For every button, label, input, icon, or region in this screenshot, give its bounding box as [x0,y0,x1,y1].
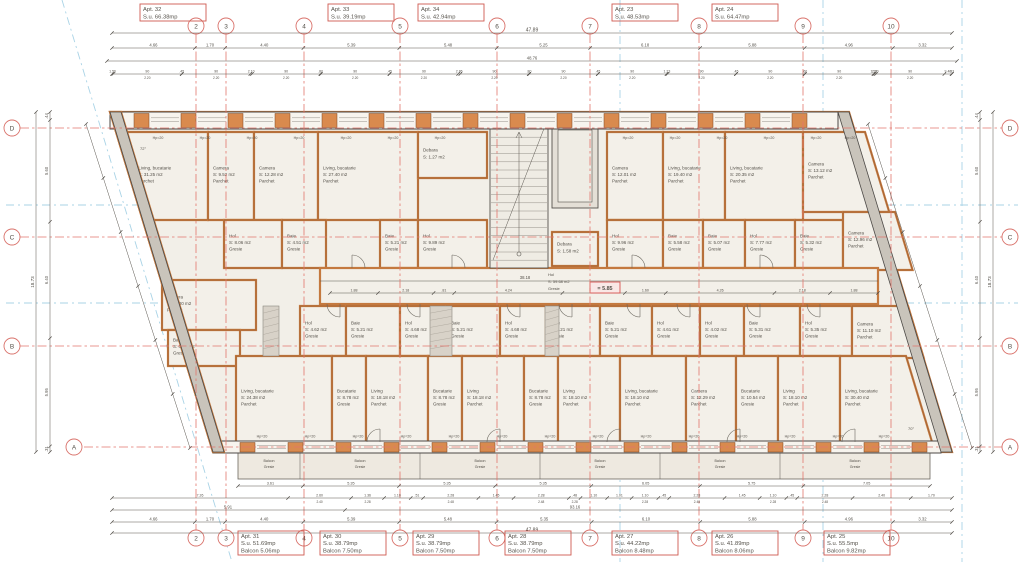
svg-text:Balcon: Balcon [355,459,366,463]
svg-text:Gresie: Gresie [505,334,519,339]
svg-text:Apt. 29: Apt. 29 [416,534,434,540]
svg-text:A: A [72,444,77,451]
svg-text:Hp=20: Hp=20 [845,136,856,140]
svg-text:Apt. 23: Apt. 23 [615,7,633,13]
svg-text:S.u. 64.47mp: S.u. 64.47mp [715,14,749,20]
svg-text:38.18: 38.18 [520,275,531,280]
svg-text:5.35: 5.35 [443,481,450,485]
svg-text:S: 27.40 m2: S: 27.40 m2 [323,172,348,177]
svg-text:Apt. 34: Apt. 34 [421,7,440,13]
room: BucatarieS: 8.78 m2Gresie [428,356,462,442]
svg-text:5.48: 5.48 [444,42,453,47]
svg-text:Gresie: Gresie [264,465,275,469]
svg-text:10: 10 [887,535,895,542]
svg-text:6: 6 [495,23,499,30]
svg-text:Apt. 32: Apt. 32 [143,7,161,13]
svg-text:5.60: 5.60 [44,166,49,175]
svg-text:Living, bucatarie: Living, bucatarie [625,388,658,393]
svg-text:Living, bucatarie: Living, bucatarie [241,388,274,393]
room: Living, bucatarieS: 24.38 m2Parchet [236,356,332,442]
grid-bubble: 9 [795,18,811,34]
svg-text:S: 30.40 m2: S: 30.40 m2 [845,395,870,400]
svg-text:2.48: 2.48 [538,500,544,504]
svg-text:Parchet: Parchet [848,244,864,249]
svg-text:1.10: 1.10 [770,493,777,497]
svg-text:Hol: Hol [805,320,812,325]
svg-text:Gresie: Gresie [708,247,722,252]
svg-text:Hol: Hol [612,233,619,238]
svg-text:S: 12.28 m2: S: 12.28 m2 [259,172,284,177]
svg-text:Hp=20: Hp=20 [811,136,822,140]
svg-text:Hp=20: Hp=20 [341,136,352,140]
apartment-label: Apt. 34S.u. 42.94mp [418,4,484,21]
svg-text:2.40: 2.40 [878,493,885,497]
svg-text:3.32: 3.32 [918,42,927,47]
svg-text:Apt. 27: Apt. 27 [615,534,633,540]
svg-text:.44: .44 [974,112,979,118]
svg-text:Parchet: Parchet [323,179,339,184]
room: HolS: 4.61 m2Gresie [652,306,700,356]
svg-text:Gresie: Gresie [351,334,365,339]
svg-text:2.20: 2.20 [767,76,773,80]
svg-text:3: 3 [224,535,228,542]
svg-text:Hp=20: Hp=20 [833,435,844,439]
svg-text:5.91: 5.91 [224,504,233,509]
svg-text:5.88: 5.88 [748,516,757,521]
svg-text:Balcon 7.50mp: Balcon 7.50mp [323,548,362,554]
room: HolS: 7.77 m2Gresie [745,220,795,268]
svg-text:1.45: 1.45 [739,493,746,497]
svg-text:Balcon 5.06mp: Balcon 5.06mp [241,548,280,554]
svg-text:Parchet: Parchet [241,402,257,407]
svg-text:1.88: 1.88 [851,288,858,292]
grid-bubble: 6 [489,530,505,546]
svg-text:2.28: 2.28 [822,493,829,497]
svg-text:Hol: Hol [423,233,430,238]
svg-text:4.40: 4.40 [260,516,269,521]
svg-text:1.70: 1.70 [206,516,215,521]
grid-bubble: D [4,120,20,136]
svg-text:2.28: 2.28 [447,493,454,497]
svg-text:S: 4.62 m2: S: 4.62 m2 [305,327,327,332]
room: LivingS: 18.18 m2Parchet [462,356,524,442]
svg-text:Hp=20: Hp=20 [257,435,268,439]
svg-text:.44: .44 [44,112,49,118]
svg-text:Gresie: Gresie [605,334,619,339]
room: HolS: 4.68 m2Gresie [500,306,546,356]
svg-text:Hol: Hol [548,272,554,277]
svg-text:S: 18.18 m2: S: 18.18 m2 [371,395,396,400]
svg-text:S: 4.51 m2: S: 4.51 m2 [287,240,309,245]
svg-text:2.28: 2.28 [770,500,776,504]
floor-plan-page: BalconGresieBalconGresieBalconGresieBalc… [0,0,1024,562]
svg-text:2.20: 2.20 [352,76,358,80]
svg-text:Hp=20: Hp=20 [435,136,446,140]
grid-bubble: 4 [296,18,312,34]
svg-text:Gresie: Gresie [548,286,561,291]
svg-text:7: 7 [588,23,592,30]
svg-text:Gresie: Gresie [385,247,399,252]
svg-text:4.96: 4.96 [845,42,854,47]
svg-text:.81: .81 [441,288,446,292]
svg-text:Gresie: Gresie [715,465,726,469]
svg-text:5.35: 5.35 [347,481,354,485]
svg-text:Gresie: Gresie [657,334,671,339]
svg-text:Hp=20: Hp=20 [717,136,728,140]
svg-text:4.24: 4.24 [505,288,512,292]
svg-text:2.20: 2.20 [421,76,427,80]
room: BucatarieS: 8.78 m2Gresie [332,356,366,442]
svg-text:3.32: 3.32 [918,516,927,521]
room: HolS: 8.06 m2Gresie [224,220,282,268]
room: LivingS: 18.10 m2Parchet [558,356,620,442]
svg-text:S: 7.77 m2: S: 7.77 m2 [750,240,772,245]
svg-text:S: 20.35 m2: S: 20.35 m2 [730,172,755,177]
svg-text:Hp=20: Hp=20 [593,435,604,439]
svg-text:S: 5.21 m2: S: 5.21 m2 [351,327,373,332]
svg-text:S: 18.10 m2: S: 18.10 m2 [563,395,588,400]
svg-text:90: 90 [908,69,912,73]
svg-text:90: 90 [630,69,634,73]
apartment-label: Apt. 27S.u. 44.22mpBalcon 8.48mp [612,531,678,555]
svg-text:Apt. 25: Apt. 25 [827,534,845,540]
room: BucatarieS: 10.54 m2Gresie [736,356,778,442]
svg-text:7.05: 7.05 [863,481,870,485]
svg-text:= 5.85: = 5.85 [597,286,612,292]
svg-text:Gresie: Gresie [451,334,465,339]
svg-text:S.u. 44.22mp: S.u. 44.22mp [615,541,649,547]
svg-text:5.95: 5.95 [44,388,49,397]
svg-text:Balcon 8.06mp: Balcon 8.06mp [715,548,754,554]
svg-text:10: 10 [887,23,895,30]
room: BucatarieS: 8.78 m2Gresie [524,356,558,442]
svg-text:Apt. 24: Apt. 24 [715,7,734,13]
apartment-label: Apt. 30S.u. 38.79mpBalcon 7.50mp [320,531,386,555]
grid-bubble: 2 [188,530,204,546]
svg-text:2.28: 2.28 [538,493,545,497]
svg-text:.31: .31 [44,446,49,452]
svg-text:Camera: Camera [857,321,874,326]
svg-text:Gresie: Gresie [229,247,243,252]
svg-text:S: 5.21 m2: S: 5.21 m2 [451,327,473,332]
svg-text:2.20: 2.20 [283,76,289,80]
svg-text:Balcon: Balcon [475,459,486,463]
room: BaieS: 5.21 m2Gresie [346,306,400,356]
svg-text:S: 8.78 m2: S: 8.78 m2 [529,395,551,400]
grid-bubble: 3 [218,530,234,546]
svg-text:Hp=20: Hp=20 [737,435,748,439]
svg-text:47.89: 47.89 [526,527,539,533]
svg-text:Living: Living [467,388,479,393]
svg-text:D: D [10,125,15,132]
room: BaieS: 5.21 m2Gresie [600,306,652,356]
svg-text:Gresie: Gresie [749,334,763,339]
svg-text:2.18: 2.18 [402,288,409,292]
room: BaieS: 5.07 m2Gresie [703,220,745,268]
svg-text:Balcon: Balcon [264,459,275,463]
apartment-label: Apt. 28S.u. 38.79mpBalcon 7.50mp [505,531,571,555]
svg-text:90: 90 [768,69,772,73]
svg-text:Hp=20: Hp=20 [401,435,412,439]
svg-text:.31: .31 [974,446,979,452]
svg-text:S.u. 55.5mp: S.u. 55.5mp [827,541,858,547]
svg-text:6.40: 6.40 [44,275,49,284]
svg-text:.45: .45 [661,493,666,497]
svg-text:Hp=20: Hp=20 [200,136,211,140]
room: HolS: 9.96 m2Gresie [607,220,663,268]
svg-text:Living: Living [563,388,575,393]
svg-text:Camera: Camera [213,165,230,170]
svg-text:Baie: Baie [385,233,395,238]
svg-text:Balcon 7.50mp: Balcon 7.50mp [416,548,455,554]
svg-text:S: 18.10 m2: S: 18.10 m2 [783,395,808,400]
svg-text:5.39: 5.39 [347,42,356,47]
svg-text:Hp=20: Hp=20 [785,435,796,439]
svg-text:Gresie: Gresie [475,465,486,469]
svg-text:2.20: 2.20 [213,76,219,80]
svg-text:90: 90 [353,69,357,73]
svg-text:D: D [1008,125,1013,132]
svg-text:5.48: 5.48 [444,516,453,521]
svg-text:5: 5 [398,23,402,30]
room: CameraS: 12.29 m2Parchet [686,356,736,442]
svg-text:2: 2 [194,535,198,542]
svg-text:Parchet: Parchet [612,179,628,184]
svg-text:90: 90 [284,69,288,73]
room: Living, bucatarieS: 18.10 m2Parchet [620,356,686,442]
svg-text:S: 4.68 m2: S: 4.68 m2 [405,327,427,332]
apartment-label: Apt. 31S.u. 51.69mpBalcon 5.06mp [238,531,304,555]
svg-text:Baie: Baie [605,320,615,325]
svg-text:Bucatarie: Bucatarie [433,388,453,393]
svg-text:S: 5.58 m2: S: 5.58 m2 [668,240,690,245]
room: Living, bucatarieS: 20.35 m2Parchet [725,132,803,220]
room: BaieS: 5.58 m2Gresie [663,220,703,268]
svg-text:2.20: 2.20 [698,76,704,80]
svg-text:Hp=20: Hp=20 [449,435,460,439]
svg-text:Parchet: Parchet [857,335,873,340]
apartment-label: Apt. 26S.u. 41.89mpBalcon 8.06mp [712,531,778,555]
svg-text:.45: .45 [789,493,794,497]
grid-bubble: 3 [218,18,234,34]
svg-text:2.28: 2.28 [364,500,370,504]
svg-text:4.96: 4.96 [845,516,854,521]
svg-text:Gresie: Gresie [337,402,351,407]
svg-text:Parchet: Parchet [213,179,229,184]
room: Living, bucatarieS: 19.40 m2Parchet [663,132,725,220]
apartment-label: Apt. 33S.u. 39.19mp [328,4,394,21]
svg-text:Hol: Hol [705,320,712,325]
svg-text:90: 90 [493,69,497,73]
svg-text:Balcon 7.50mp: Balcon 7.50mp [508,548,547,554]
svg-text:Apt. 31: Apt. 31 [241,534,259,540]
svg-text:Gresie: Gresie [433,402,447,407]
svg-text:S: 5.21 m2: S: 5.21 m2 [605,327,627,332]
room: CameraS: 9.52 m2Parchet [208,132,254,220]
svg-text:S: 1.27 m2: S: 1.27 m2 [423,154,445,159]
svg-text:Living, bucatarie: Living, bucatarie [138,165,171,170]
svg-text:S: 5.35 m2: S: 5.35 m2 [805,327,827,332]
svg-text:Gresie: Gresie [741,402,755,407]
svg-text:Apt. 28: Apt. 28 [508,534,526,540]
apartment-label: Apt. 29S.u. 38.79mpBalcon 7.50mp [413,531,479,555]
svg-text:Gresie: Gresie [750,247,764,252]
svg-text:Living, bucatarie: Living, bucatarie [845,388,878,393]
svg-text:47.89: 47.89 [526,27,539,33]
svg-text:Balcon 9.82mp: Balcon 9.82mp [827,548,866,554]
svg-text:C: C [10,234,15,241]
svg-text:4.26: 4.26 [717,288,724,292]
svg-text:.48: .48 [572,493,577,497]
grid-bubble: 10 [883,18,899,34]
svg-text:Bucatarie: Bucatarie [741,388,761,393]
grid-bubble: 7 [582,18,598,34]
room: BaieS: 5.21 m2Gresie [446,306,500,356]
svg-text:S.u. 51.69mp: S.u. 51.69mp [241,541,275,547]
svg-text:2: 2 [194,23,198,30]
svg-text:2.20: 2.20 [629,76,635,80]
svg-text:7: 7 [588,535,592,542]
svg-text:18.73: 18.73 [30,276,35,288]
svg-text:Camera: Camera [808,161,825,166]
svg-text:Gresie: Gresie [595,465,606,469]
svg-text:S: 9.52 m2: S: 9.52 m2 [213,172,235,177]
svg-text:Parchet: Parchet [625,402,641,407]
svg-text:S: 18.18 m2: S: 18.18 m2 [467,395,492,400]
svg-text:90: 90 [145,69,149,73]
svg-text:4: 4 [302,23,306,30]
svg-text:2.20: 2.20 [907,76,913,80]
svg-text:S.u. 41.89mp: S.u. 41.89mp [715,541,749,547]
svg-text:2.18: 2.18 [799,288,806,292]
svg-text:S.u. 38.79mp: S.u. 38.79mp [323,541,357,547]
svg-text:3.61: 3.61 [267,481,274,485]
svg-text:Hp=20: Hp=20 [153,136,164,140]
svg-text:1.23: 1.23 [664,69,671,73]
svg-text:Baie: Baie [451,320,461,325]
svg-text:Gresie: Gresie [423,247,437,252]
svg-text:S.u. 42.94mp: S.u. 42.94mp [421,14,455,20]
svg-text:5.88: 5.88 [748,42,757,47]
svg-text:S: 5.31 m2: S: 5.31 m2 [749,327,771,332]
svg-text:S.u. 48.53mp: S.u. 48.53mp [615,14,649,20]
svg-text:Hp=20: Hp=20 [623,136,634,140]
svg-text:90: 90 [214,69,218,73]
grid-bubble: 8 [691,18,707,34]
svg-text:8: 8 [697,535,701,542]
grid-bubble: 9 [795,530,811,546]
svg-text:Balcon: Balcon [715,459,726,463]
svg-text:S: 19.40 m2: S: 19.40 m2 [668,172,693,177]
svg-text:Camera: Camera [848,230,865,235]
svg-text:1.70: 1.70 [928,493,935,497]
floor-plan-svg: BalconGresieBalconGresieBalconGresieBalc… [0,0,1024,562]
corridor: 38.181.882.18.814.242.451.604.262.181.88… [320,268,880,304]
svg-text:S.u. 38.79mp: S.u. 38.79mp [508,541,542,547]
elevator [552,124,598,208]
svg-text:Hol: Hol [657,320,664,325]
svg-text:2.20: 2.20 [144,76,150,80]
svg-text:Parchet: Parchet [467,402,483,407]
svg-text:S: 8.06 m2: S: 8.06 m2 [229,240,251,245]
svg-text:2.20: 2.20 [560,76,566,80]
svg-text:6.40: 6.40 [974,275,979,284]
svg-text:1.10: 1.10 [642,493,649,497]
svg-text:2.28: 2.28 [642,500,648,504]
svg-text:S: 9.96 m2: S: 9.96 m2 [612,240,634,245]
svg-text:Living, bucatarie: Living, bucatarie [730,165,763,170]
svg-text:93.16: 93.16 [570,504,581,509]
svg-text:Hol: Hol [305,320,312,325]
svg-text:Hol: Hol [505,320,512,325]
svg-text:2.28: 2.28 [572,500,578,504]
svg-text:B: B [1008,343,1012,350]
svg-text:Baie: Baie [351,320,361,325]
svg-text:2.48: 2.48 [822,500,828,504]
svg-text:6.05: 6.05 [642,481,649,485]
svg-text:48.76: 48.76 [527,55,538,60]
svg-text:90: 90 [700,69,704,73]
svg-text:1.56: 1.56 [109,69,116,73]
svg-text:5.35: 5.35 [540,481,547,485]
svg-text:Baie: Baie [287,233,297,238]
svg-text:S.u. 66.38mp: S.u. 66.38mp [143,14,177,20]
svg-text:72°: 72° [140,146,146,151]
svg-text:2.28: 2.28 [693,493,700,497]
room: LivingS: 18.10 m2Parchet [778,356,840,442]
svg-text:2.48: 2.48 [448,500,454,504]
svg-text:S: 12.29 m2: S: 12.29 m2 [691,395,716,400]
svg-text:S: 1.58 m2: S: 1.58 m2 [557,248,579,253]
room: Living, bucatarieS: 27.40 m2Parchet [318,132,418,220]
svg-text:Debara: Debara [423,148,438,153]
svg-text:1.10: 1.10 [590,493,597,497]
svg-text:Hp=20: Hp=20 [305,435,316,439]
svg-text:Gresie: Gresie [800,247,814,252]
svg-text:Hol: Hol [405,320,412,325]
svg-text:Gresie: Gresie [305,334,319,339]
svg-text:Hp=20: Hp=20 [247,136,258,140]
svg-text:B: B [10,343,14,350]
svg-text:18.73: 18.73 [987,276,992,288]
svg-text:1.36: 1.36 [364,493,371,497]
svg-text:Baie: Baie [708,233,718,238]
svg-text:70°: 70° [908,426,914,431]
svg-text:Gresie: Gresie [405,334,419,339]
room: BaieS: 5.21 m2Gresie [380,220,418,268]
svg-text:5.39: 5.39 [347,516,356,521]
svg-text:4.66: 4.66 [149,516,158,521]
svg-text:Parchet: Parchet [845,402,861,407]
svg-text:Parchet: Parchet [668,179,684,184]
svg-text:9: 9 [801,535,805,542]
svg-text:Living: Living [371,388,383,393]
grid-bubble: 2 [188,18,204,34]
room: DebaraS: 1.27 m2 [418,132,487,178]
svg-text:Hol: Hol [229,233,236,238]
room: BaieS: 5.32 m2Gresie [795,220,843,268]
svg-text:Parchet: Parchet [259,179,275,184]
svg-text:C: C [1008,234,1013,241]
svg-text:2.40: 2.40 [316,500,322,504]
svg-text:7.26: 7.26 [197,493,204,497]
grid-bubble: C [4,229,20,245]
room: HolS: 9.89 m2Gresie [418,220,487,268]
svg-text:Gresie: Gresie [529,402,543,407]
grid-bubble: B [4,338,20,354]
svg-text:6.18: 6.18 [641,42,650,47]
svg-text:S: 11.10 m2: S: 11.10 m2 [857,328,881,333]
